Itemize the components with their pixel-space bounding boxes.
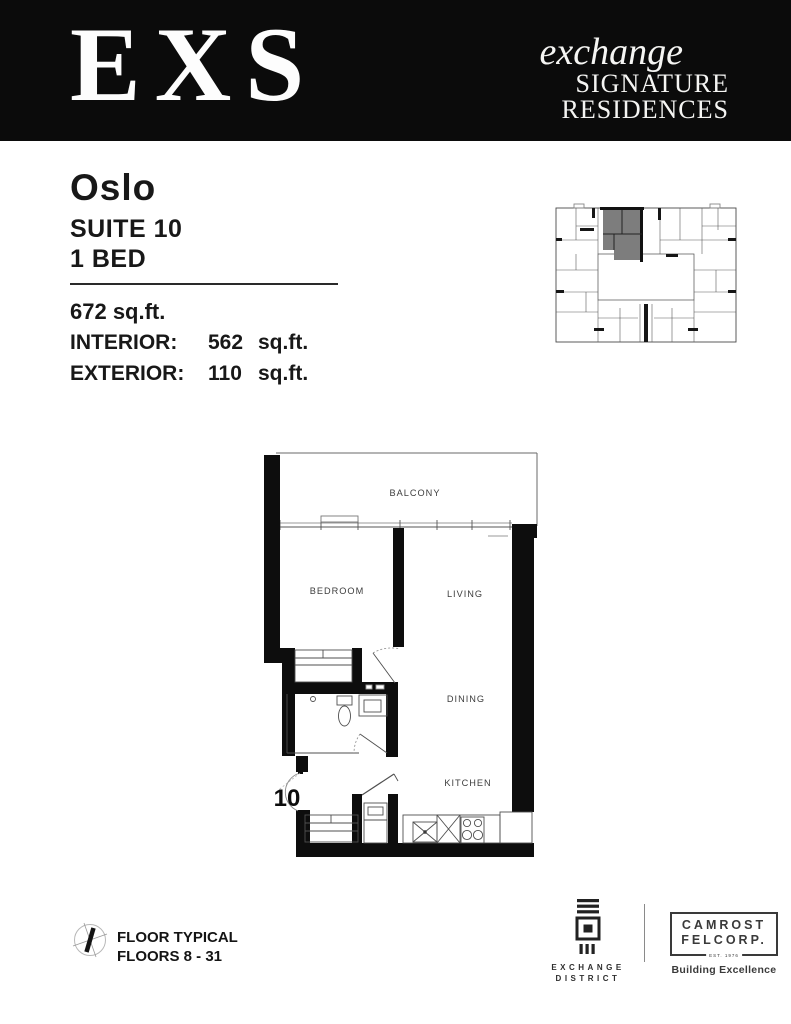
toilet-tank — [337, 696, 352, 705]
washer — [364, 803, 387, 843]
entry-closet — [305, 815, 358, 842]
header-banner: EXS exchange SIGNATURE RESIDENCES — [0, 0, 791, 141]
exterior-value: 110 — [208, 358, 258, 389]
district-word: DISTRICT — [545, 973, 631, 984]
living-label: LIVING — [447, 589, 483, 599]
title-divider — [70, 283, 338, 285]
bedroom-door — [373, 648, 400, 683]
interior-label: INTERIOR: — [70, 327, 208, 358]
floors-range-label: FLOORS 8 - 31 — [117, 947, 238, 966]
kitchen-label: KITCHEN — [444, 778, 491, 788]
dining-label: DINING — [447, 694, 485, 704]
exchange-district-wordmark: EXCHANGE DISTRICT — [545, 962, 631, 984]
fridge — [500, 812, 532, 843]
north-arrow-icon — [70, 920, 110, 960]
vanity-sink — [364, 700, 381, 712]
interior-walls — [283, 528, 404, 845]
floor-note: FLOOR TYPICAL FLOORS 8 - 31 — [117, 928, 238, 966]
shower-drain-icon — [311, 697, 316, 702]
camrost-est: EST. 1976 — [706, 953, 742, 958]
interior-unit: sq.ft. — [258, 327, 308, 358]
interior-area-row: INTERIOR: 562 sq.ft. — [70, 327, 340, 358]
exterior-label: EXTERIOR: — [70, 358, 208, 389]
brand-block: exchange SIGNATURE RESIDENCES — [540, 33, 729, 123]
kitchen-counter — [403, 812, 532, 843]
vanity — [359, 695, 387, 716]
felcorp-word: FELCORP. — [681, 933, 767, 948]
camrost-felcorp-logo: CAMROST FELCORP. EST. 1976 Building Exce… — [662, 912, 786, 976]
exterior-unit: sq.ft. — [258, 358, 308, 389]
floor-typical-label: FLOOR TYPICAL — [117, 928, 238, 947]
brand-residences: RESIDENCES — [540, 97, 729, 123]
suite-bed-label: 1 BED — [70, 244, 340, 274]
exs-logo: EXS — [70, 12, 318, 118]
camrost-tagline: Building Excellence — [662, 964, 786, 976]
suite-title-block: Oslo SUITE 10 1 BED 672 sq.ft. INTERIOR:… — [70, 168, 340, 389]
laundry-door-leaf — [362, 774, 394, 795]
stove-burners — [461, 817, 484, 843]
bathroom-door-leaf — [360, 734, 387, 753]
suite-number-label: SUITE 10 — [70, 214, 340, 244]
bedroom-label: BEDROOM — [310, 586, 364, 596]
bathroom — [287, 685, 387, 753]
suite-name: Oslo — [70, 168, 340, 208]
exchange-district-icon — [567, 898, 609, 954]
camrost-word: CAMROST — [681, 918, 767, 933]
suite-number-on-plan: 10 — [274, 785, 301, 812]
keyplan-locator — [550, 200, 742, 348]
bathroom-door-swing — [354, 734, 360, 753]
brand-signature: SIGNATURE — [540, 71, 729, 97]
keyplan-wall-poche — [556, 208, 736, 342]
brand-exchange: exchange — [540, 33, 683, 71]
exchange-district-logo: EXCHANGE DISTRICT — [545, 898, 631, 984]
camrost-box: CAMROST FELCORP. EST. 1976 — [670, 912, 778, 956]
bedroom-closet — [295, 650, 352, 682]
balcony-label: BALCONY — [390, 488, 441, 498]
exterior-area-row: EXTERIOR: 110 sq.ft. — [70, 358, 340, 389]
interior-value: 562 — [208, 327, 258, 358]
exterior-walls — [264, 455, 537, 857]
footer-logo-divider — [644, 904, 645, 962]
exchange-word: EXCHANGE — [545, 962, 631, 973]
toilet-bowl — [339, 706, 351, 726]
floorplan: BALCONY BEDROOM LIVING DINING KITCHEN 10 — [256, 446, 548, 866]
total-area: 672 sq.ft. — [70, 297, 340, 327]
